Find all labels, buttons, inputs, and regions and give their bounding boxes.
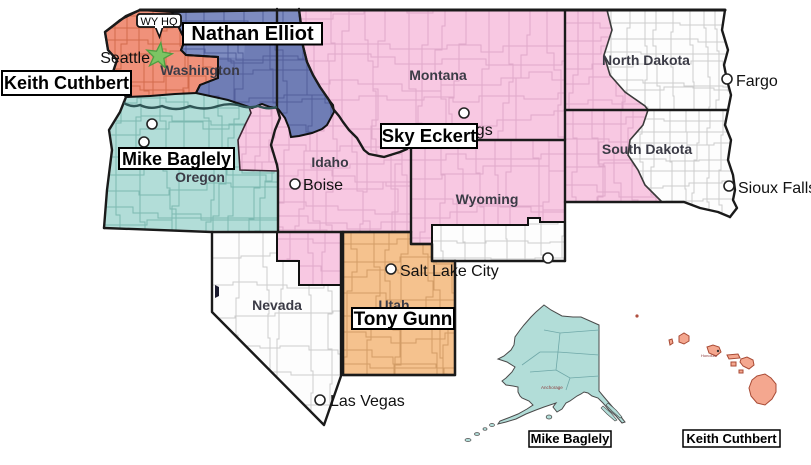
svg-text:Keith Cuthbert: Keith Cuthbert: [4, 73, 129, 93]
svg-text:Washington: Washington: [160, 62, 240, 78]
svg-text:Mike Baglely: Mike Baglely: [122, 149, 231, 169]
svg-text:Las Vegas: Las Vegas: [330, 393, 405, 410]
svg-text:Mike Baglely: Mike Baglely: [531, 431, 611, 446]
svg-text:Honolulu: Honolulu: [701, 353, 717, 358]
svg-text:Anchorage: Anchorage: [541, 385, 563, 390]
svg-text:Nevada: Nevada: [252, 297, 302, 313]
svg-text:WY HQ: WY HQ: [140, 16, 178, 28]
svg-text:South Dakota: South Dakota: [602, 141, 692, 157]
svg-text:Tony Gunn: Tony Gunn: [354, 309, 453, 330]
svg-text:Wyoming: Wyoming: [456, 191, 519, 207]
svg-text:Sky Eckert: Sky Eckert: [382, 125, 477, 146]
svg-text:Sioux Falls: Sioux Falls: [738, 180, 811, 197]
svg-text:Fargo: Fargo: [736, 73, 778, 90]
svg-text:Keith Cuthbert: Keith Cuthbert: [686, 431, 777, 446]
svg-text:North Dakota: North Dakota: [602, 52, 690, 68]
svg-text:Oregon: Oregon: [175, 169, 225, 185]
svg-text:Salt Lake City: Salt Lake City: [400, 263, 499, 280]
svg-text:Boise: Boise: [303, 177, 343, 194]
svg-text:Nathan Elliot: Nathan Elliot: [191, 23, 314, 45]
svg-text:Seattle: Seattle: [100, 50, 150, 67]
svg-text:Montana: Montana: [409, 67, 467, 83]
svg-text:Idaho: Idaho: [311, 154, 348, 170]
